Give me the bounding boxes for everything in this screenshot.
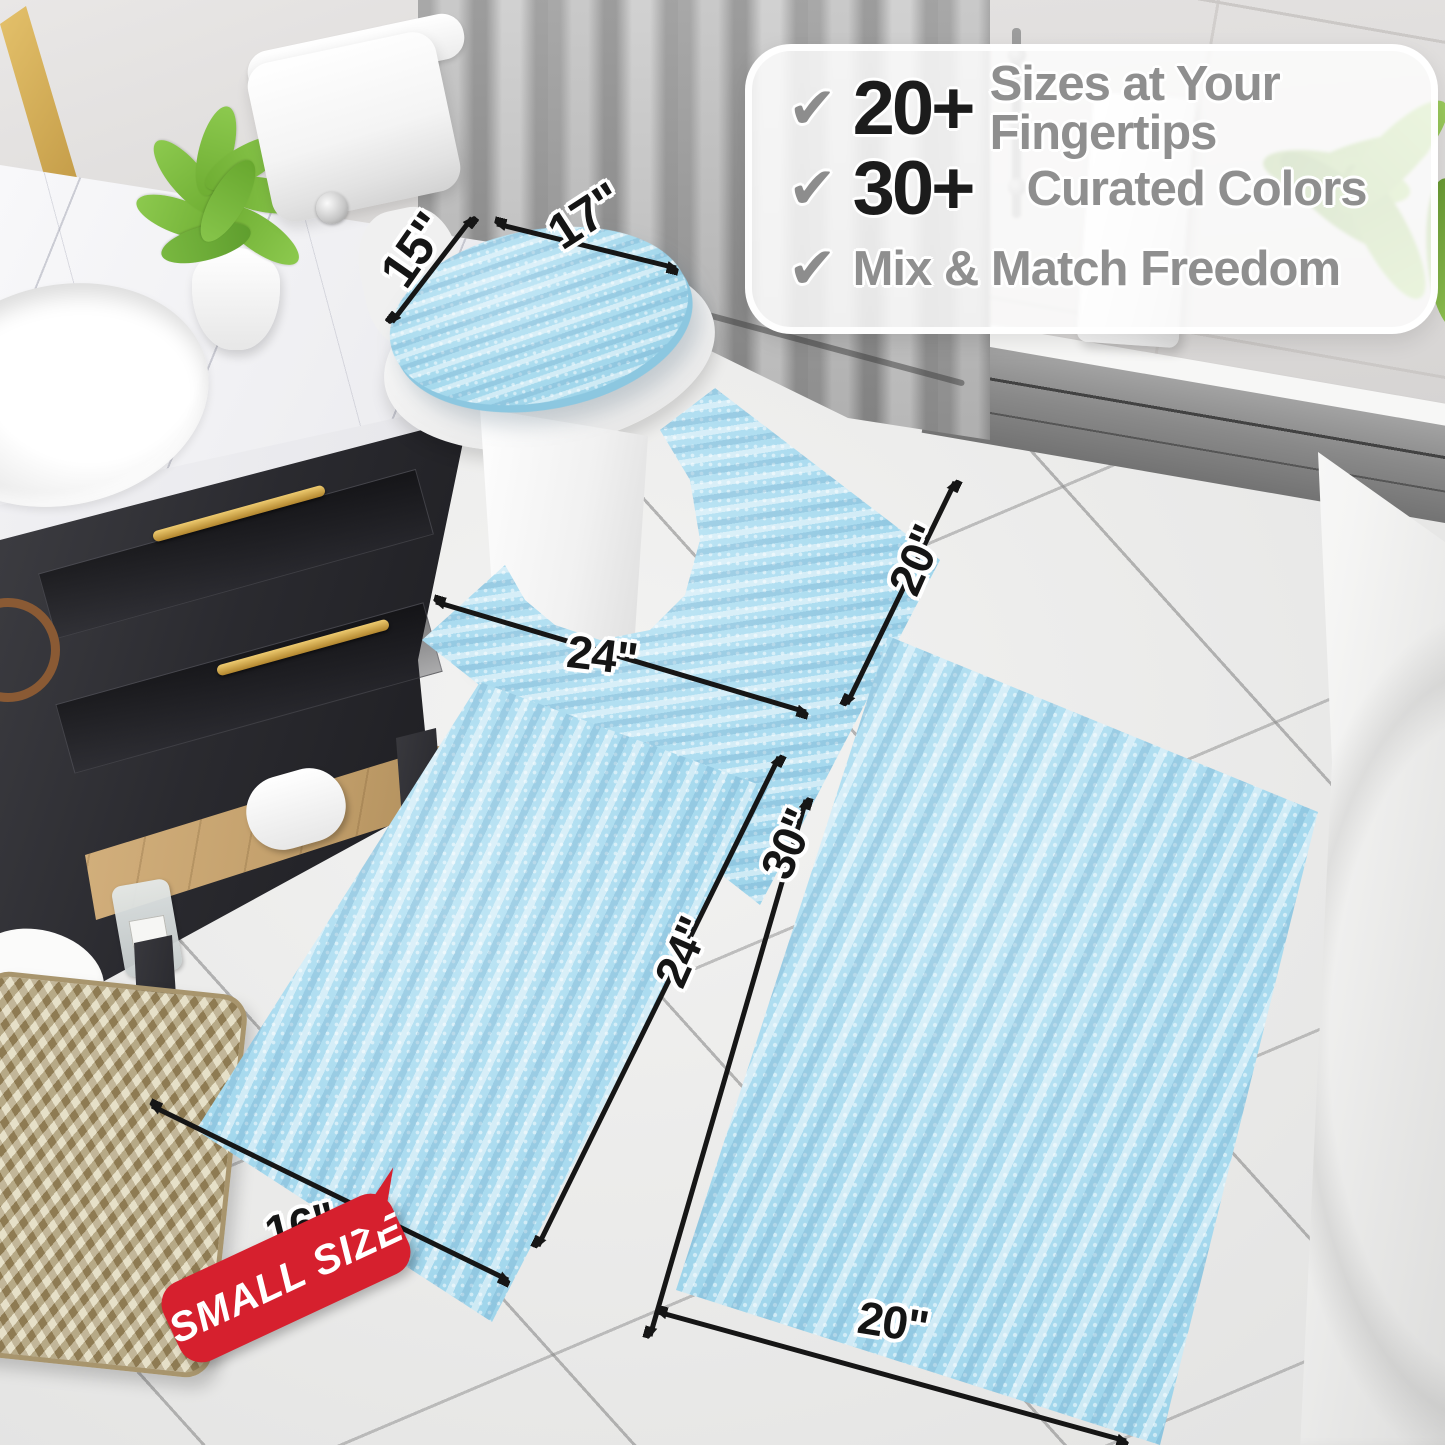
bath-rug-product-image: 17" 15" 24" 20" 24" 30" 16" 20" SMALL SI…: [0, 0, 1445, 1445]
check-icon: ✔: [788, 240, 837, 298]
feature-number: 20+: [853, 71, 974, 147]
feature-label: Sizes at Your Fingertips: [990, 60, 1395, 158]
plant-pot: [192, 248, 280, 350]
dim-label-large-rug-width: 20": [854, 1290, 932, 1354]
flush-button: [316, 192, 348, 224]
small-size-badge: SMALL SIZE: [150, 1205, 440, 1385]
feature-row: ✔ 20+ Sizes at Your Fingertips: [788, 69, 1395, 149]
feature-label: Mix & Match Freedom: [853, 245, 1340, 294]
feature-number: 30+: [853, 151, 1011, 227]
check-icon: ✔: [788, 80, 837, 138]
dim-label-contour-width: 24": [564, 624, 640, 686]
check-icon: ✔: [788, 160, 837, 218]
badge-bubble: SMALL SIZE: [154, 1186, 419, 1370]
feature-row: ✔ 30+ Curated Colors: [788, 149, 1395, 229]
feature-label: Curated Colors: [1027, 165, 1367, 214]
feature-callout-box: ✔ 20+ Sizes at Your Fingertips ✔ 30+ Cur…: [745, 44, 1438, 334]
feature-row: ✔ Mix & Match Freedom: [788, 229, 1395, 309]
